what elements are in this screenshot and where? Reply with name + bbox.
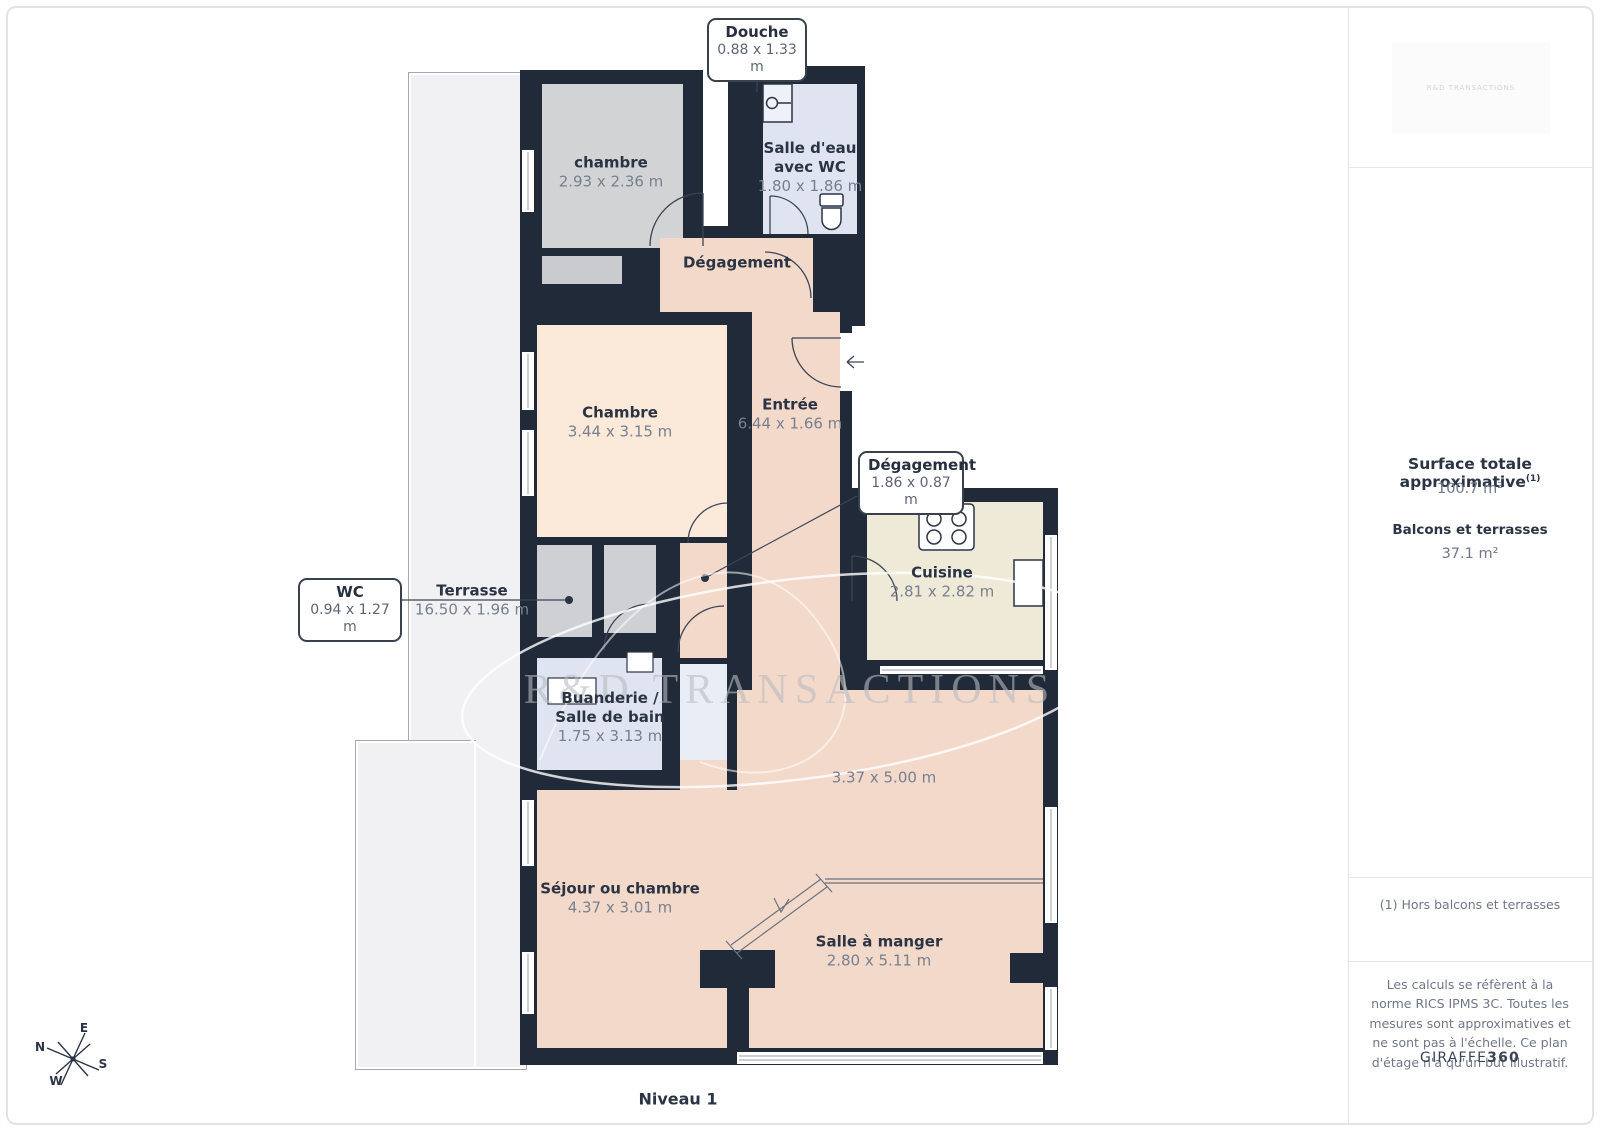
callout-title: Douche [717,23,797,42]
footnote: (1) Hors balcons et terrasses [1352,895,1588,914]
floor-plan-page: { "header": { "level_label": "Niveau 1" … [0,0,1600,1131]
room-dims: 3.37 x 5.00 m [832,769,937,788]
surface-total-value: 100.7 m² [1352,481,1588,497]
floor-degagement [660,238,813,312]
brand-logo: GIRAFFE360 [1352,1050,1588,1066]
callout-douche: Douche 0.88 x 1.33 m [707,18,807,82]
callout-dims: 0.88 x 1.33 m [717,42,797,77]
room-name: Terrasse [415,581,529,600]
compass-w: W [49,1074,62,1088]
sidebar-divider-3 [1348,961,1592,962]
balconies-title: Balcons et terrasses [1352,522,1588,538]
wall-stub-sejour-vertical [727,985,749,1060]
room-name: Buanderie / Salle de bain [545,689,675,727]
room-label-degagement: Dégagement [683,254,791,273]
callout-wc: WC 0.94 x 1.27 m [298,578,402,642]
room-label-cuisine: Cuisine 2.81 x 2.82 m [890,563,995,601]
room-label-salle-a-manger: Salle à manger 2.80 x 5.11 m [816,932,943,970]
compass-n: N [35,1040,45,1054]
agency-logo: R&D TRANSACTIONS [1392,42,1550,134]
room-dims: 3.44 x 3.15 m [568,422,673,441]
room-label-buanderie: Buanderie / Salle de bain 1.75 x 3.13 m [545,689,675,745]
room-dims: 1.80 x 1.86 m [754,176,866,195]
room-name: Dégagement [683,254,791,273]
room-label-entree: Entrée 6.44 x 1.66 m [738,395,843,433]
room-name: Séjour ou chambre [540,879,700,898]
callout-degagement: Dégagement 1.86 x 0.87 m [858,451,964,515]
callout-dims: 0.94 x 1.27 m [308,602,392,637]
floor-living-main [537,790,1043,1048]
wall-stub-right [1010,953,1058,983]
room-dims: 2.80 x 5.11 m [816,951,943,970]
room-name: Salle à manger [816,932,943,951]
compass-s: S [99,1057,108,1071]
room-label-sejour-zone: 3.37 x 5.00 m [832,769,937,788]
room-name: Salle d'eau avec WC [754,139,866,177]
terrace-area-lower [355,740,476,1070]
brand-suffix: 360 [1487,1050,1520,1066]
floor-entree [752,312,840,702]
callout-dims: 1.86 x 0.87 m [868,475,954,510]
room-name: Entrée [738,395,843,414]
callout-title: Dégagement [868,456,954,475]
room-dims: 16.50 x 1.96 m [415,600,529,619]
sidebar-divider-vertical [1348,8,1349,1123]
room-label-salle-deau: Salle d'eau avec WC 1.80 x 1.86 m [754,139,866,195]
room-name: chambre [559,153,664,172]
room-dims: 2.93 x 2.36 m [559,172,664,191]
room-label-terrasse: Terrasse 16.50 x 1.96 m [415,581,529,619]
floor-wardrobe [542,256,622,284]
entrance-door-gap [840,333,854,391]
sidebar-divider-2 [1348,877,1592,878]
floor-wc [537,545,592,637]
floor-corridor-bath [680,664,727,760]
room-label-chambre-1: chambre 2.93 x 2.36 m [559,153,664,191]
balconies-value: 37.1 m² [1352,546,1588,562]
agency-logo-text: R&D TRANSACTIONS [1427,84,1515,92]
room-name: Chambre [568,403,673,422]
callout-title: WC [308,583,392,602]
wall-stub-sejour [700,950,775,988]
room-dims: 2.81 x 2.82 m [890,582,995,601]
sidebar-divider-1 [1348,167,1592,168]
room-dims: 1.75 x 3.13 m [545,726,675,745]
compass-e: E [80,1021,88,1035]
room-dims: 4.37 x 3.01 m [540,898,700,917]
room-label-chambre-2: Chambre 3.44 x 3.15 m [568,403,673,441]
brand-name: GIRAFFE [1420,1050,1487,1066]
room-label-sejour: Séjour ou chambre 4.37 x 3.01 m [540,879,700,917]
floor-small-room [604,545,656,633]
floor-corridor-lower [680,760,727,790]
room-dims: 6.44 x 1.66 m [738,414,843,433]
level-label: Niveau 1 [638,1090,717,1109]
room-name: Cuisine [890,563,995,582]
floor-corridor-upper [680,543,727,658]
